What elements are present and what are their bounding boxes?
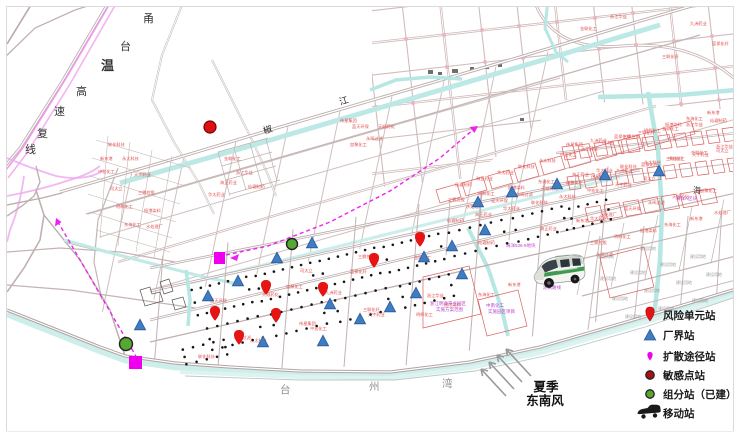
svg-text:甬: 甬 bbox=[143, 12, 154, 25]
svg-text:中南化工: 中南化工 bbox=[486, 302, 504, 309]
svg-text:金联化工: 金联化工 bbox=[662, 125, 679, 132]
svg-text:温: 温 bbox=[101, 58, 114, 73]
svg-text:海正药业: 海正药业 bbox=[540, 225, 557, 232]
svg-text:建设用地: 建设用地 bbox=[612, 295, 628, 301]
svg-text:扩散途径站: 扩散途径站 bbox=[663, 350, 716, 363]
svg-text:蓝天环保: 蓝天环保 bbox=[491, 197, 509, 204]
svg-text:明辉化工: 明辉化工 bbox=[416, 311, 433, 318]
svg-text:司太立: 司太立 bbox=[716, 147, 729, 154]
svg-text:水处理厂: 水处理厂 bbox=[714, 209, 731, 216]
svg-text:州: 州 bbox=[369, 381, 380, 393]
svg-text:华太药业: 华太药业 bbox=[497, 169, 514, 176]
svg-text:建设用地: 建设用地 bbox=[598, 253, 614, 259]
svg-text:建设用地: 建设用地 bbox=[625, 313, 641, 319]
svg-text:新东港: 新东港 bbox=[100, 155, 113, 162]
svg-text:台: 台 bbox=[280, 383, 291, 396]
svg-text:线: 线 bbox=[25, 142, 36, 156]
svg-text:海洋A区块: 海洋A区块 bbox=[676, 195, 698, 202]
svg-text:湾: 湾 bbox=[442, 377, 453, 390]
svg-text:司太立: 司太立 bbox=[300, 267, 313, 274]
svg-text:海洋536-9地块: 海洋536-9地块 bbox=[506, 242, 536, 249]
svg-text:振港染料: 振港染料 bbox=[144, 207, 162, 214]
svg-text:永太科技: 永太科技 bbox=[122, 155, 140, 162]
svg-text:建设用地: 建设用地 bbox=[600, 275, 616, 281]
svg-text:天宇药业: 天宇药业 bbox=[134, 171, 151, 178]
svg-text:厂界站: 厂界站 bbox=[663, 329, 695, 342]
svg-text:新东港: 新东港 bbox=[576, 217, 589, 224]
svg-text:风险单元站: 风险单元站 bbox=[663, 309, 716, 322]
svg-text:新东港: 新东港 bbox=[508, 281, 521, 288]
svg-text:仙琚制药: 仙琚制药 bbox=[478, 239, 495, 246]
svg-text:九洲药业: 九洲药业 bbox=[590, 137, 607, 144]
svg-text:永太科技: 永太科技 bbox=[539, 157, 557, 164]
svg-text:天宇药业: 天宇药业 bbox=[692, 151, 709, 158]
svg-text:建设用地: 建设用地 bbox=[692, 297, 708, 303]
svg-text:司太立: 司太立 bbox=[110, 185, 123, 192]
svg-text:三鼎控股: 三鼎控股 bbox=[590, 239, 608, 246]
svg-text:加聚化工: 加聚化工 bbox=[700, 187, 717, 194]
svg-text:浙江华益: 浙江华益 bbox=[610, 13, 627, 20]
svg-text:海正药业: 海正药业 bbox=[476, 175, 493, 182]
svg-text:实施园区项目: 实施园区项目 bbox=[488, 308, 515, 315]
svg-text:海正药业: 海正药业 bbox=[572, 171, 589, 178]
svg-text:组分站（已建）: 组分站（已建） bbox=[663, 388, 736, 401]
svg-text:中宏化工: 中宏化工 bbox=[668, 155, 685, 162]
svg-text:东海化工: 东海化工 bbox=[538, 178, 555, 185]
svg-text:金联化工: 金联化工 bbox=[580, 25, 597, 32]
svg-text:建设用地: 建设用地 bbox=[644, 287, 660, 293]
svg-text:永太科技: 永太科技 bbox=[559, 193, 577, 200]
svg-text:蓝保化纤: 蓝保化纤 bbox=[350, 268, 368, 275]
svg-text:蓝保化纤: 蓝保化纤 bbox=[712, 40, 730, 47]
svg-text:水处理厂: 水处理厂 bbox=[146, 223, 163, 230]
svg-text:联化科技: 联化科技 bbox=[620, 163, 638, 170]
svg-text:中宏化工: 中宏化工 bbox=[310, 325, 327, 332]
svg-text:加聚化工: 加聚化工 bbox=[350, 141, 367, 148]
svg-text:永晖过滤: 永晖过滤 bbox=[366, 135, 384, 142]
svg-text:浙江华益: 浙江华益 bbox=[427, 292, 444, 299]
svg-text:九洲药业: 九洲药业 bbox=[690, 20, 707, 27]
svg-text:天宇药业: 天宇药业 bbox=[615, 181, 632, 188]
svg-text:海正药业: 海正药业 bbox=[475, 211, 492, 218]
svg-text:海正药业: 海正药业 bbox=[220, 179, 237, 186]
svg-text:建设用地: 建设用地 bbox=[630, 269, 646, 275]
svg-text:永晖过滤: 永晖过滤 bbox=[648, 199, 666, 206]
svg-text:三鼎控股: 三鼎控股 bbox=[138, 189, 156, 196]
svg-text:复: 复 bbox=[37, 126, 48, 140]
svg-text:速: 速 bbox=[54, 105, 65, 118]
svg-text:高: 高 bbox=[76, 84, 87, 98]
svg-text:仙琚制药: 仙琚制药 bbox=[447, 217, 464, 224]
svg-text:建设用地: 建设用地 bbox=[660, 261, 676, 267]
svg-text:伟星集团: 伟星集团 bbox=[340, 117, 357, 124]
svg-text:新东港: 新东港 bbox=[690, 215, 703, 222]
svg-text:夏季: 夏季 bbox=[532, 379, 559, 394]
svg-text:中宏化工: 中宏化工 bbox=[560, 151, 577, 158]
svg-text:联化科技: 联化科技 bbox=[108, 141, 126, 148]
svg-text:实施方案范围: 实施方案范围 bbox=[436, 306, 463, 313]
svg-text:敏感点站: 敏感点站 bbox=[662, 369, 705, 382]
svg-text:东海化工: 东海化工 bbox=[686, 115, 703, 122]
svg-text:华太药业: 华太药业 bbox=[208, 191, 225, 198]
svg-text:华太药业: 华太药业 bbox=[503, 205, 520, 212]
svg-text:建设用地: 建设用地 bbox=[706, 271, 722, 277]
svg-text:蓝保化纤: 蓝保化纤 bbox=[614, 133, 632, 140]
svg-text:永晖过滤: 永晖过滤 bbox=[516, 191, 534, 198]
svg-text:三鼎控股: 三鼎控股 bbox=[448, 196, 466, 203]
svg-text:伟星集团: 伟星集团 bbox=[566, 141, 583, 148]
svg-text:建设用地: 建设用地 bbox=[690, 253, 706, 259]
svg-text:联化科技: 联化科技 bbox=[518, 163, 536, 170]
svg-text:明辉化工: 明辉化工 bbox=[478, 190, 495, 197]
svg-text:东南风: 东南风 bbox=[526, 393, 564, 408]
svg-text:振港染料: 振港染料 bbox=[640, 227, 658, 234]
svg-text:明辉化工: 明辉化工 bbox=[116, 203, 133, 210]
svg-text:浙江华益: 浙江华益 bbox=[686, 121, 703, 128]
svg-text:三联化纤: 三联化纤 bbox=[662, 53, 680, 60]
svg-text:仙琚制药: 仙琚制药 bbox=[455, 181, 472, 188]
svg-text:东海化工: 东海化工 bbox=[664, 221, 681, 228]
svg-text:东海化工: 东海化工 bbox=[124, 221, 141, 228]
svg-text:浙江华益: 浙江华益 bbox=[236, 169, 253, 176]
svg-text:中宏化工: 中宏化工 bbox=[98, 168, 115, 175]
svg-text:蓝天环保: 蓝天环保 bbox=[352, 123, 370, 130]
svg-text:明辉化工: 明辉化工 bbox=[614, 233, 631, 240]
svg-text:移动站: 移动站 bbox=[663, 407, 695, 420]
svg-text:仙琚制药: 仙琚制药 bbox=[710, 117, 727, 124]
svg-text:天宇药业: 天宇药业 bbox=[581, 145, 598, 152]
svg-text:东海化工: 东海化工 bbox=[478, 291, 495, 298]
svg-text:三联化纤: 三联化纤 bbox=[638, 129, 656, 136]
svg-text:华太药业: 华太药业 bbox=[590, 215, 607, 222]
svg-text:新东港: 新东港 bbox=[707, 109, 720, 116]
svg-text:建设用地: 建设用地 bbox=[676, 279, 692, 285]
svg-text:加聚化工: 加聚化工 bbox=[566, 179, 583, 186]
svg-text:仙琚制药: 仙琚制药 bbox=[248, 183, 265, 190]
svg-text:加聚化工: 加聚化工 bbox=[286, 283, 303, 290]
svg-text:金联化工: 金联化工 bbox=[224, 155, 241, 162]
svg-text:九洲药业: 九洲药业 bbox=[325, 289, 342, 296]
svg-text:中宏化工: 中宏化工 bbox=[587, 187, 604, 194]
svg-text:蓝天环保: 蓝天环保 bbox=[624, 205, 642, 212]
svg-text:台: 台 bbox=[120, 39, 131, 53]
svg-text:建设用地: 建设用地 bbox=[640, 245, 656, 251]
svg-text:联化科技: 联化科技 bbox=[531, 199, 549, 206]
svg-text:天顺药化: 天顺药化 bbox=[378, 123, 396, 130]
